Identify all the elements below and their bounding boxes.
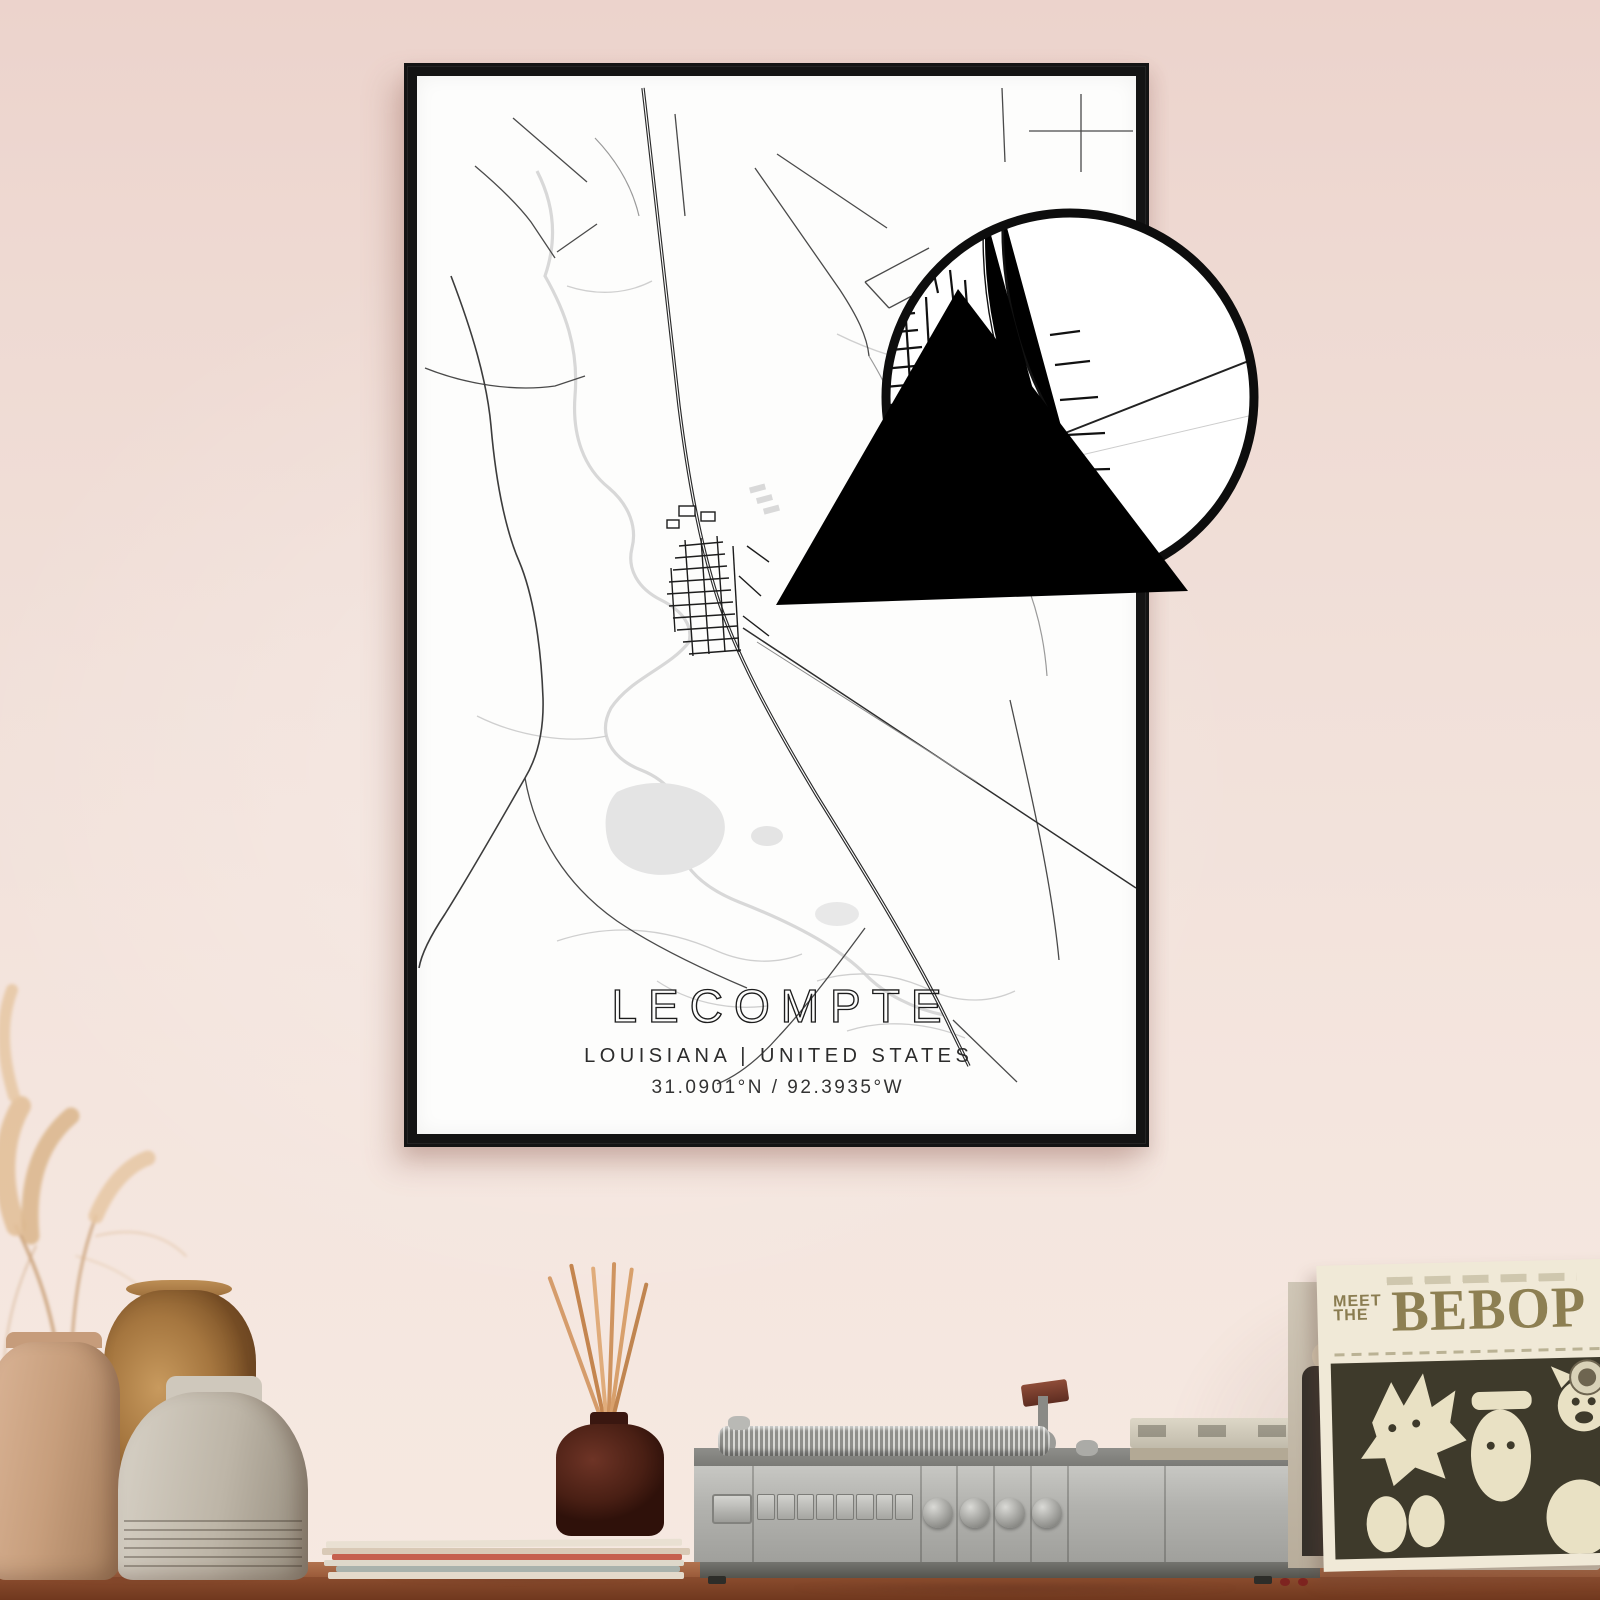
- poster-text-block: LECOMPTE LOUISIANA | UNITED STATES 31.09…: [417, 979, 1136, 1099]
- push-key: [797, 1494, 815, 1520]
- album-art-figures: [1331, 1356, 1600, 1559]
- player-knob: [1032, 1498, 1062, 1528]
- album-pretitle: MEET THE: [1333, 1294, 1382, 1323]
- vase-gray: [118, 1392, 308, 1580]
- poster-subtitle: LOUISIANA | UNITED STATES: [417, 1045, 1136, 1068]
- poster-title: LECOMPTE: [417, 979, 1136, 1033]
- player-right-console: [1130, 1418, 1306, 1448]
- magazine: [328, 1572, 684, 1579]
- album-subtext-rule: [1334, 1347, 1600, 1357]
- push-key: [876, 1494, 894, 1520]
- player-foot: [1254, 1576, 1272, 1584]
- panel-seam: [752, 1466, 754, 1562]
- spindle-adapter: [728, 1416, 750, 1430]
- panel-seam: [1164, 1466, 1166, 1562]
- red-knob: [1298, 1578, 1308, 1586]
- magnifier-callout: [760, 185, 1280, 625]
- player-base: [700, 1562, 1320, 1578]
- magazine-stack: [322, 1540, 690, 1580]
- poster-coordinates: 31.0901°N / 92.3935°W: [417, 1077, 1136, 1099]
- room-scene: LECOMPTE LOUISIANA | UNITED STATES 31.09…: [0, 0, 1600, 1600]
- player-knob: [960, 1498, 990, 1528]
- push-key: [895, 1494, 913, 1520]
- record-player: [694, 1382, 1326, 1594]
- push-key: [836, 1494, 854, 1520]
- push-key: [757, 1494, 775, 1520]
- album-title: BEBOP: [1391, 1274, 1587, 1345]
- red-knob: [1280, 1578, 1290, 1586]
- magazine: [326, 1539, 682, 1548]
- push-key: [816, 1494, 834, 1520]
- player-knob: [923, 1498, 953, 1528]
- panel-seam: [956, 1466, 958, 1562]
- panel-seam: [1067, 1466, 1069, 1562]
- vase-tan: [0, 1342, 120, 1580]
- player-knob: [995, 1498, 1025, 1528]
- album-pretitle-line2: THE: [1333, 1308, 1382, 1323]
- panel-seam: [920, 1466, 922, 1562]
- push-key: [856, 1494, 874, 1520]
- deck-knob: [1076, 1440, 1098, 1456]
- player-buttons: [757, 1494, 913, 1520]
- album-sleeve-front: MEET THE BEBOP: [1316, 1258, 1600, 1572]
- player-foot: [708, 1576, 726, 1584]
- push-key: [777, 1494, 795, 1520]
- power-button: [712, 1494, 752, 1524]
- reed-diffuser-bottle: [556, 1424, 664, 1536]
- turntable-platter: [718, 1426, 1050, 1456]
- album-artwork: [1331, 1356, 1600, 1559]
- reed-sticks: [540, 1258, 690, 1438]
